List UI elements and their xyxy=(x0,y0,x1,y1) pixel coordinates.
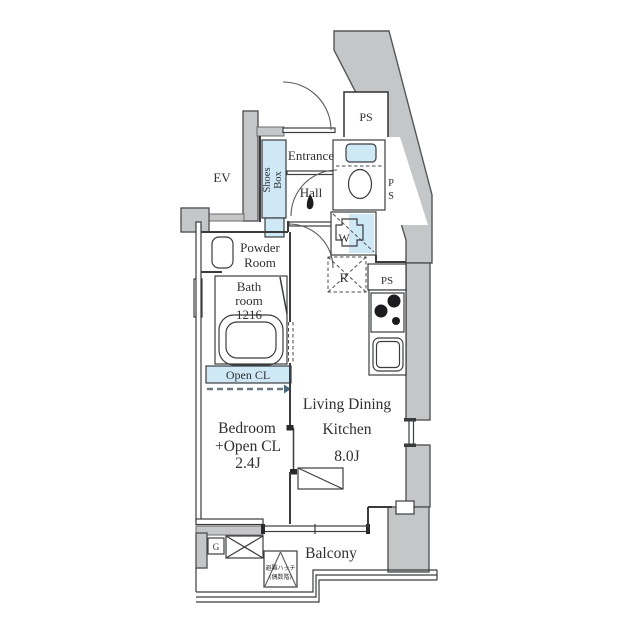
door-stop-1 xyxy=(287,425,294,431)
floorplan-drawing: EV PS P S Shoes Box Entrance Hall Powder… xyxy=(0,0,639,640)
right-wall-upper xyxy=(406,263,430,420)
bedroom-size-label: 2.4J xyxy=(235,455,260,472)
bathtub-inner xyxy=(226,322,276,358)
balcony-label: Balcony xyxy=(305,545,357,562)
entrance-door-arc xyxy=(283,82,331,130)
hall-door-arc xyxy=(289,224,333,268)
ps-kitchen-label: PS xyxy=(381,275,393,287)
washbasin xyxy=(212,237,233,268)
ps-side-p: P xyxy=(388,178,394,189)
ev-wall-corner xyxy=(181,208,209,232)
burner-2 xyxy=(388,295,401,308)
right-window xyxy=(404,418,416,447)
powder-label-2: Room xyxy=(244,255,276,270)
bath-label-3: 1216 xyxy=(236,307,263,322)
right-window-cap-top xyxy=(404,418,416,422)
window-cap-left xyxy=(261,524,265,534)
ldk-label-1: Living Dining xyxy=(303,396,392,413)
shoes-box-label-2: Box xyxy=(273,171,284,189)
bath-label-2: room xyxy=(235,293,262,308)
ldk-label-2: Kitchen xyxy=(322,421,371,438)
bedroom-label-2: +Open CL xyxy=(215,438,281,455)
entrance-label: Entrance xyxy=(288,148,334,163)
door-stop-2 xyxy=(290,469,297,475)
floorplan-page: EV PS P S Shoes Box Entrance Hall Powder… xyxy=(0,0,639,640)
hatch-label-1: 避難ハッチ xyxy=(265,564,295,572)
bedroom-label-1: Bedroom xyxy=(218,420,276,437)
hatch-label-2: (偶数階) xyxy=(269,573,292,581)
balcony-left-column xyxy=(196,533,207,568)
washer-label: W xyxy=(338,231,350,245)
table-diagonal xyxy=(298,468,343,489)
toilet-tank xyxy=(346,144,376,162)
burner-1 xyxy=(375,305,388,318)
right-wall-lower xyxy=(406,445,430,507)
ps-side-s: S xyxy=(388,191,394,202)
gas-meter-label: G xyxy=(213,542,220,552)
entrance-side-wall xyxy=(257,127,284,136)
pipe-box xyxy=(396,501,414,514)
railing-line-2 xyxy=(196,575,437,597)
burner-3 xyxy=(392,317,400,325)
open-cl-label: Open CL xyxy=(226,368,270,382)
bath-door xyxy=(280,277,287,314)
kitchen xyxy=(368,255,406,375)
left-exterior-wall xyxy=(196,222,201,522)
balcony-side-block xyxy=(388,507,429,572)
ps-top-label: PS xyxy=(359,110,372,124)
ev-label: EV xyxy=(213,170,231,185)
washer-blue xyxy=(349,214,374,253)
right-window-cap-bottom xyxy=(404,444,416,448)
shoes-box-label-1: Shoes xyxy=(262,167,273,192)
ev-wall-bar xyxy=(205,214,244,221)
entrance-door xyxy=(283,128,335,133)
powder-label-1: Powder xyxy=(240,240,280,255)
bath-label-1: Bath xyxy=(237,279,262,294)
entrance-counter xyxy=(265,218,284,237)
ldk-table xyxy=(298,468,343,489)
ev-wall-vertical xyxy=(243,111,258,221)
ldk-size-label: 8.0J xyxy=(334,448,359,465)
hall-label: Hall xyxy=(300,185,323,200)
bedroom-south-wall xyxy=(196,519,263,525)
fridge-label: R xyxy=(340,270,349,285)
